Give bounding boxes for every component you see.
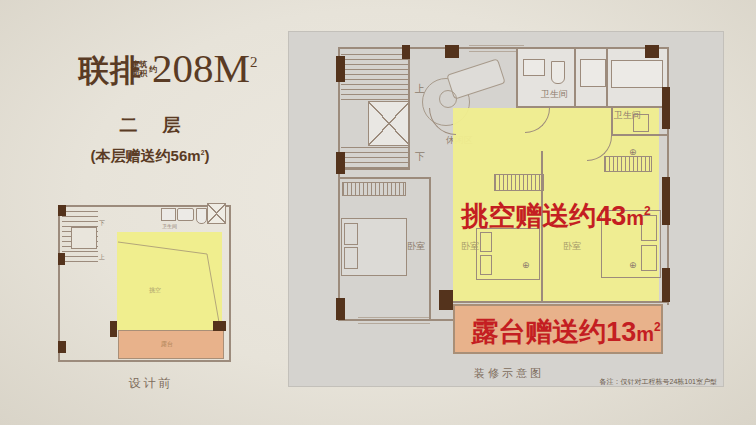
stairs-down-label: 下 bbox=[415, 150, 425, 164]
area-sup: 2 bbox=[250, 54, 258, 70]
window bbox=[358, 317, 430, 324]
bath-label-1: 卫生间 bbox=[541, 88, 568, 101]
area-prefix-top: 建筑 bbox=[131, 60, 147, 69]
mini-elevator bbox=[71, 227, 97, 249]
wall bbox=[606, 47, 608, 108]
disclaimer: 备注：仅针对工程栋号24栋101室户型 bbox=[533, 377, 717, 387]
bath2-fixture bbox=[633, 114, 649, 132]
bath-toilet bbox=[551, 61, 565, 84]
column bbox=[336, 152, 345, 174]
mini-sink bbox=[177, 208, 194, 221]
wall bbox=[611, 108, 613, 136]
column bbox=[445, 45, 459, 58]
main-panel: 卫生间 上 下 休闲区 卫生间 卧室 bbox=[288, 31, 724, 387]
light-fixture-icon: ⊕ bbox=[522, 260, 530, 270]
stairs-lower bbox=[341, 145, 408, 168]
mini-column bbox=[213, 321, 226, 331]
mini-void-outline bbox=[117, 232, 222, 330]
column bbox=[336, 298, 345, 320]
bath-sink bbox=[523, 59, 545, 76]
bedroom-label-3: 卧室 bbox=[563, 240, 581, 253]
wall bbox=[611, 134, 669, 136]
light-fixture-icon: ⊕ bbox=[629, 147, 637, 157]
wall bbox=[408, 47, 410, 168]
column bbox=[645, 45, 659, 58]
bath-shower bbox=[580, 59, 606, 87]
mini-column bbox=[58, 341, 66, 353]
floor-bonus-note: (本层赠送约56m2) bbox=[50, 147, 250, 166]
mini-void-area: 挑空 bbox=[117, 232, 222, 330]
void-bonus-text: 挑空赠送约43m2 bbox=[441, 198, 671, 234]
wall bbox=[574, 47, 576, 108]
bedroom-label-1: 卧室 bbox=[407, 240, 425, 253]
bed bbox=[476, 228, 540, 280]
mini-bath-label: 卫生间 bbox=[162, 223, 177, 229]
wardrobe bbox=[494, 174, 544, 191]
elevator bbox=[368, 101, 410, 146]
mini-void-label: 挑空 bbox=[149, 286, 161, 295]
bed bbox=[341, 218, 407, 276]
mini-plan-caption: 设计前 bbox=[55, 375, 247, 392]
bath-vanity bbox=[611, 60, 663, 88]
wall bbox=[429, 177, 431, 321]
column bbox=[662, 87, 670, 129]
leisure-chair bbox=[439, 90, 457, 108]
mini-washer bbox=[161, 208, 176, 221]
mini-down-label: 下 bbox=[99, 219, 105, 228]
wardrobe bbox=[604, 156, 652, 172]
wall bbox=[338, 168, 410, 170]
column bbox=[336, 56, 345, 82]
door-arc bbox=[429, 108, 456, 135]
bedroom-label-2: 卧室 bbox=[461, 240, 479, 253]
area-prefix-bottom: 面积 bbox=[131, 69, 147, 78]
mini-toilet bbox=[196, 208, 207, 224]
column bbox=[439, 290, 453, 310]
wardrobe bbox=[342, 182, 406, 196]
mini-column bbox=[110, 321, 117, 337]
wall bbox=[338, 177, 431, 179]
mini-up-label: 上 bbox=[99, 253, 105, 262]
area-value: 208M2 bbox=[152, 44, 257, 92]
mini-terrace-area: 露台 bbox=[118, 330, 224, 359]
stairs-upper bbox=[341, 52, 408, 100]
wall bbox=[338, 47, 340, 321]
mini-terrace-label: 露台 bbox=[161, 340, 173, 349]
column bbox=[662, 268, 670, 302]
poster: 联排 建筑 面积 约 208M2 二 层 (本层赠送约56m2) 挑空 露台 下… bbox=[0, 0, 756, 425]
wall bbox=[453, 301, 669, 303]
light-fixture-icon: ⊕ bbox=[629, 260, 637, 270]
mini-floor-plan: 挑空 露台 下 上 卫生间 设计前 bbox=[55, 193, 247, 398]
terrace-bonus-text: 露台赠送约13m2 bbox=[451, 314, 681, 350]
floor-label: 二 层 bbox=[70, 113, 230, 137]
wall bbox=[667, 47, 669, 305]
mini-column bbox=[58, 205, 66, 216]
wall bbox=[516, 47, 518, 108]
mini-column bbox=[58, 253, 65, 265]
column bbox=[402, 45, 410, 59]
mini-corner-window bbox=[207, 203, 226, 224]
